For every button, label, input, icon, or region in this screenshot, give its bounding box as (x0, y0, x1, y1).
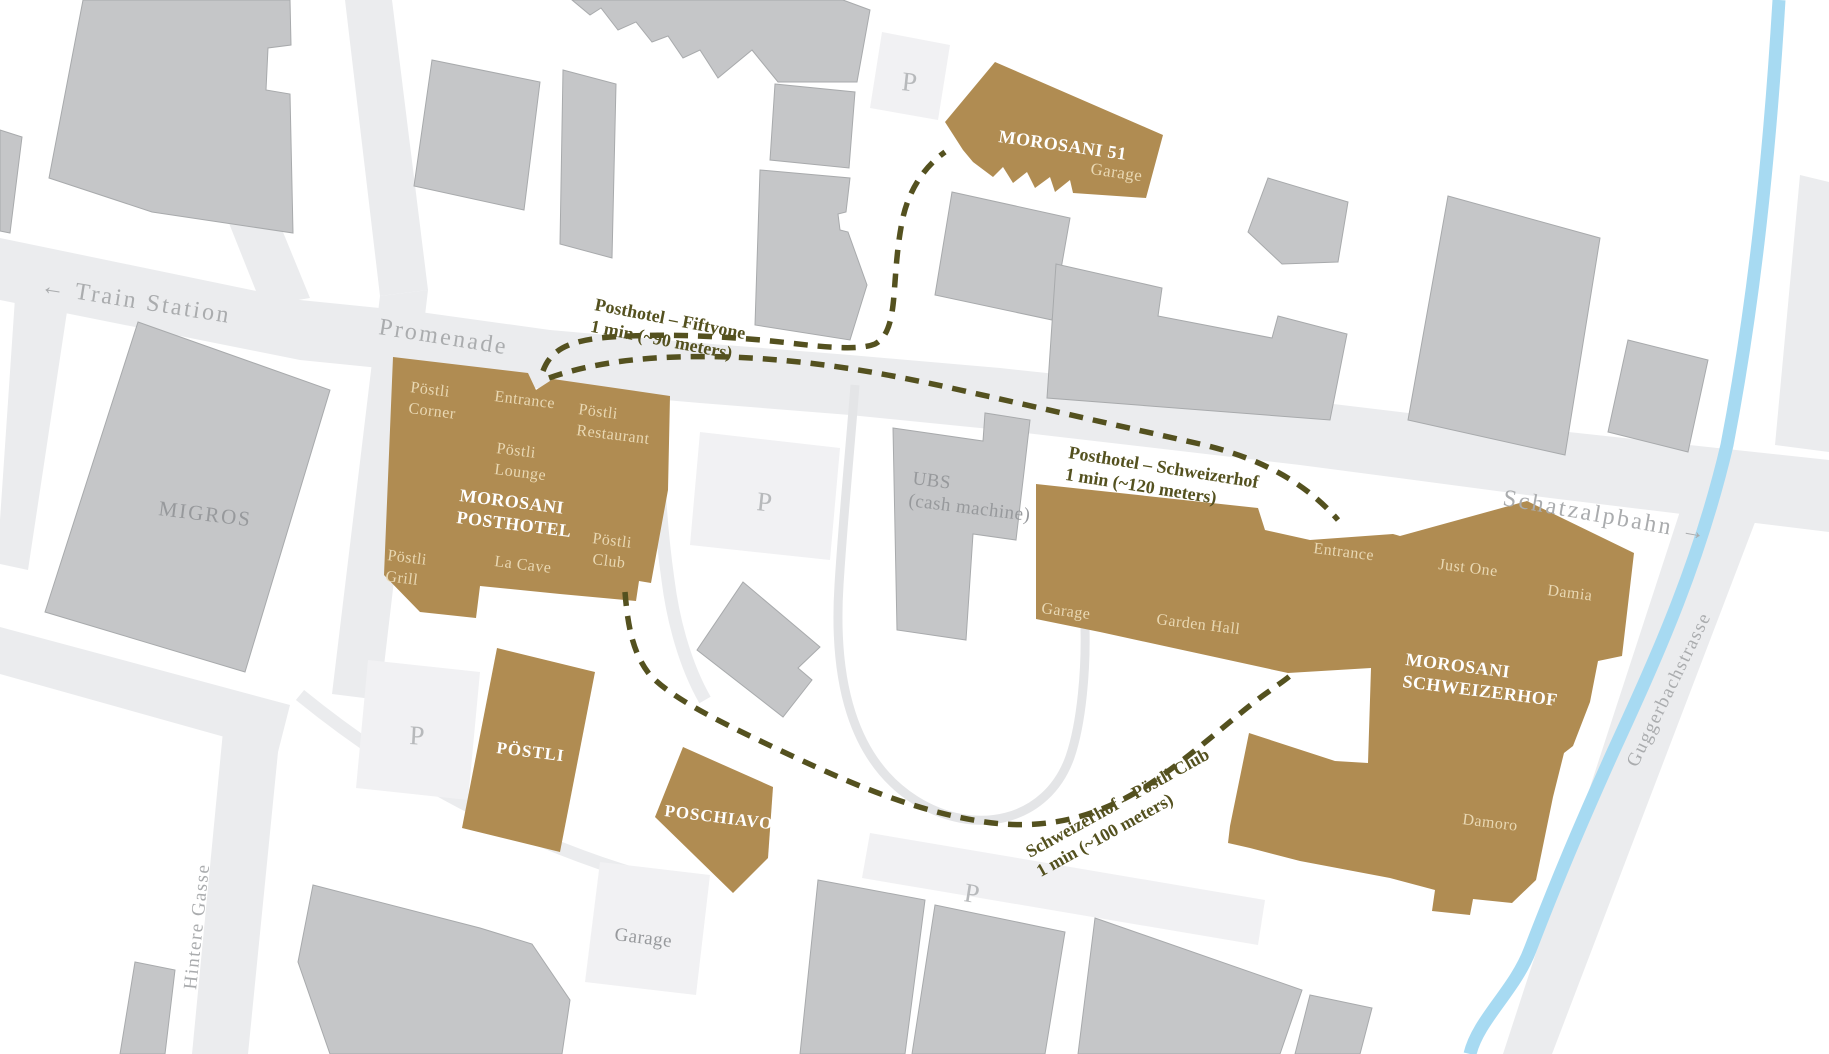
building (935, 192, 1070, 320)
hotel-area-map: ← Train Station Promenade Schatzalpbahn … (0, 0, 1829, 1054)
building (1608, 340, 1708, 452)
building (414, 60, 540, 210)
route-label-schweizerhof-postli-club: Schweizerhof – Pöstli Club 1 min (~100 m… (1022, 744, 1223, 882)
building (560, 70, 616, 258)
building (1248, 178, 1348, 264)
building (912, 905, 1065, 1054)
building (1295, 995, 1372, 1054)
building (770, 84, 855, 168)
parking-icon: P (900, 66, 918, 97)
parking-icon: P (755, 486, 773, 517)
map-canvas: ← Train Station Promenade Schatzalpbahn … (0, 0, 1829, 1054)
building (0, 130, 22, 233)
building (1047, 264, 1347, 420)
road-right-edge (1775, 175, 1829, 452)
building (800, 880, 925, 1054)
parking-icon: P (409, 720, 426, 751)
building (298, 885, 570, 1054)
building (49, 0, 293, 233)
road-left-vertical (0, 298, 68, 570)
road-center-upper (345, 0, 428, 296)
building (1078, 918, 1302, 1054)
building (755, 170, 867, 340)
building (1408, 196, 1600, 455)
route-label-line: Schweizerhof – Pöstli Club (1022, 744, 1212, 862)
migros-building (45, 322, 330, 672)
building (120, 962, 175, 1054)
ubs-building (893, 413, 1030, 640)
building (697, 582, 820, 717)
building-zigzag-roof (572, 0, 870, 82)
